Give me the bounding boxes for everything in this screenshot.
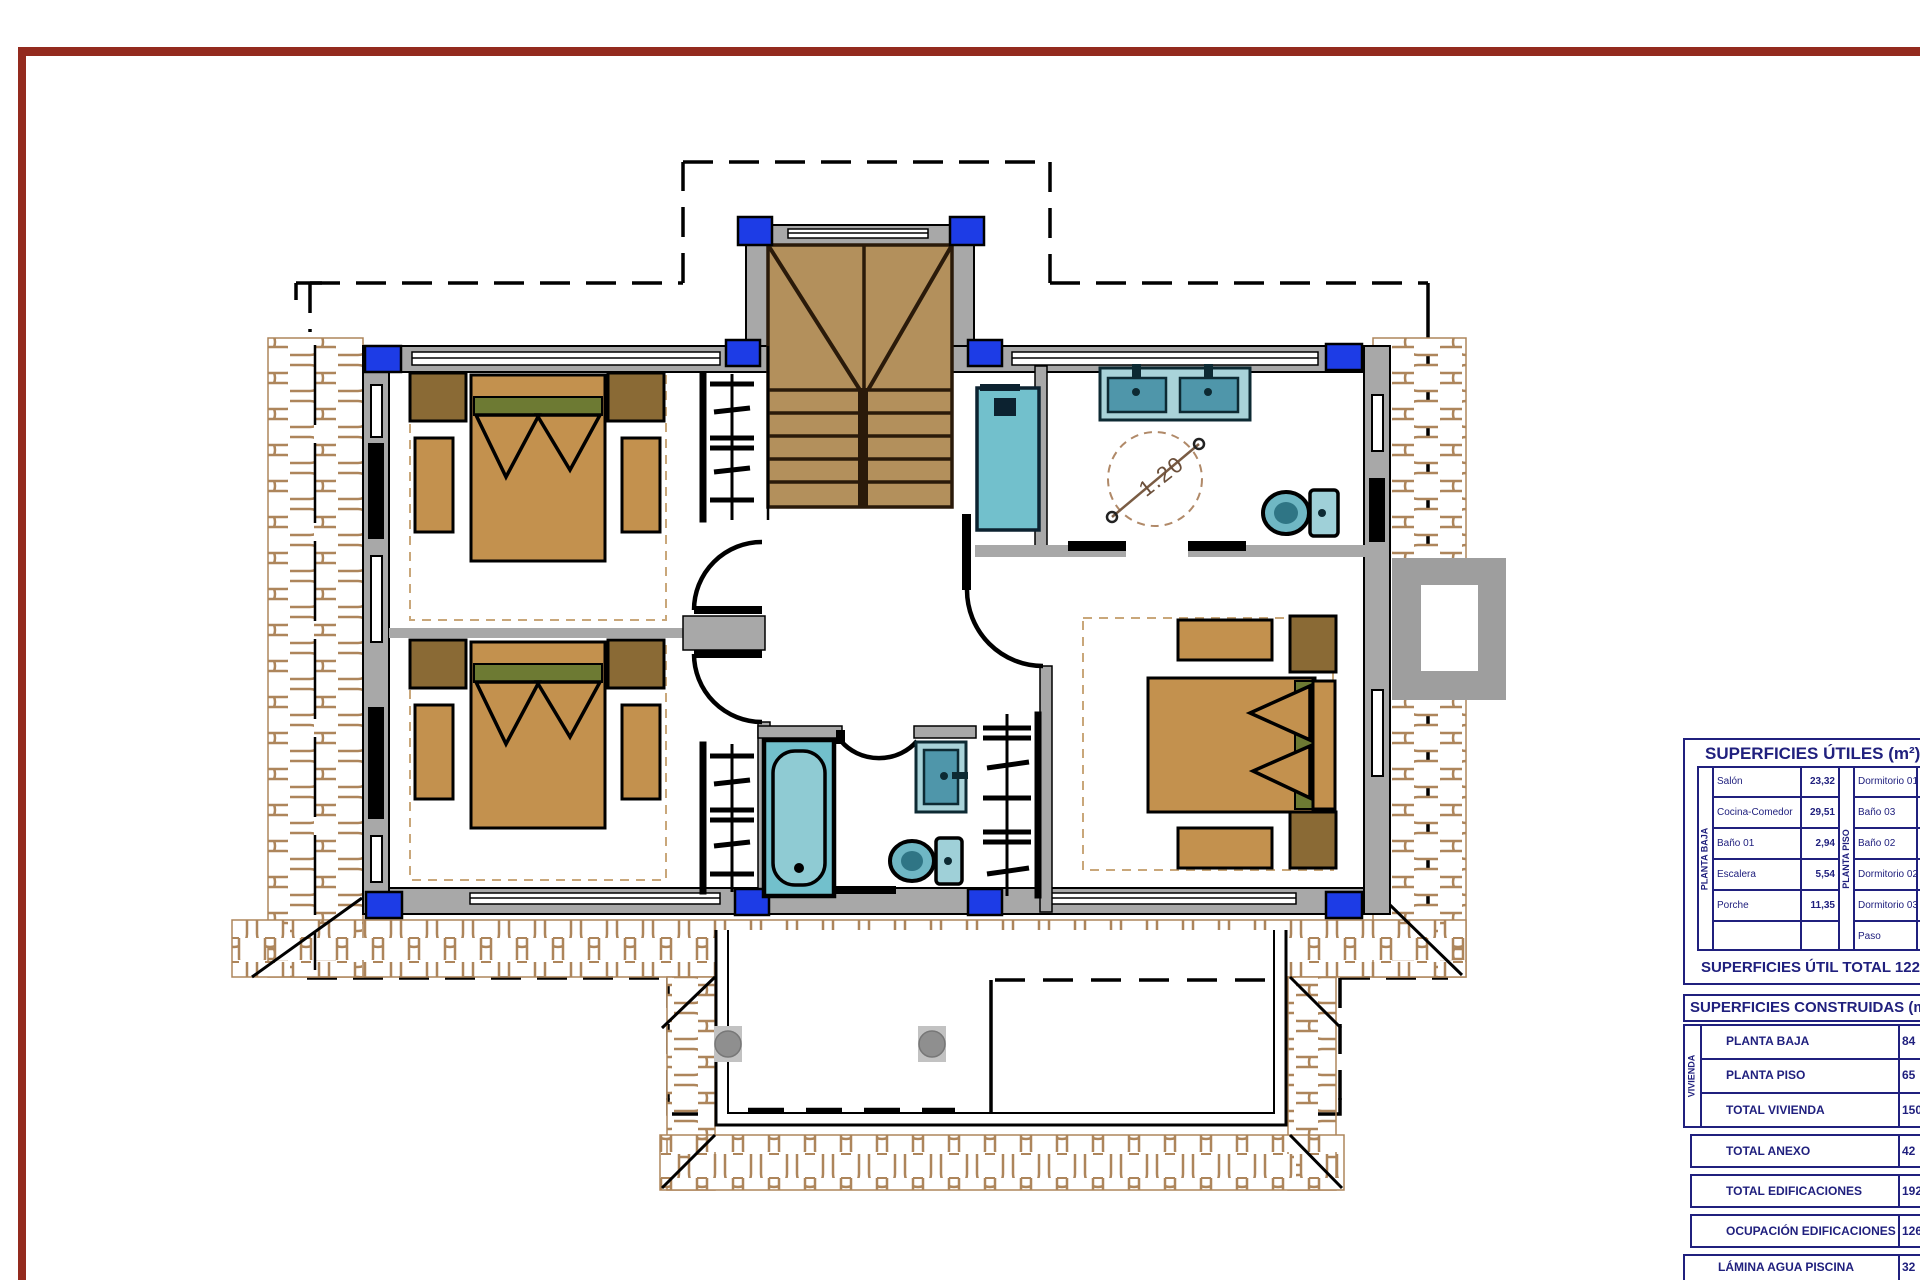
shower (977, 384, 1039, 530)
toilet (1263, 490, 1338, 536)
planta-baja-vertical-label: PLANTA BAJA (1697, 766, 1712, 951)
row-value: 126 (1898, 1214, 1920, 1248)
row-value: 65 (1898, 1058, 1920, 1092)
row-name: OCUPACIÓN EDIFICACIONES (1700, 1214, 1898, 1248)
row-name: Baño 01 (1712, 828, 1800, 858)
floor-plan-drawing: 1.20 (0, 0, 1920, 1280)
staircase (746, 225, 974, 520)
row-value: 192 (1898, 1174, 1920, 1208)
row-name: TOTAL VIVIENDA (1700, 1092, 1898, 1128)
row-name: Baño 03 (1853, 797, 1916, 827)
row-name: TOTAL EDIFICACIONES (1700, 1174, 1898, 1208)
row-name: Paso (1853, 921, 1916, 951)
row-value: 150 (1898, 1092, 1920, 1128)
row-name: Cocina-Comedor (1712, 797, 1800, 827)
row-value: 32 (1898, 1254, 1920, 1280)
row-name: Escalera (1712, 859, 1800, 889)
row-name: Salón (1712, 766, 1800, 796)
row-name: Baño 02 (1853, 828, 1916, 858)
row-name: Dormitorio 02 (1853, 859, 1916, 889)
planta-piso-vertical-label: PLANTA PISO (1838, 766, 1853, 951)
row-value: 2,94 (1800, 828, 1838, 858)
porch-column (918, 1026, 946, 1062)
sink (916, 742, 968, 812)
utiles-title: SUPERFICIES ÚTILES (m²) (1705, 744, 1920, 764)
bed (410, 373, 664, 561)
window (368, 385, 384, 882)
row-name: LÁMINA AGUA PISCINA (1692, 1254, 1898, 1280)
vivienda-vertical-label: VIVIENDA (1683, 1024, 1700, 1128)
row-value: 23,32 (1800, 766, 1838, 796)
row-value: 29,51 (1800, 797, 1838, 827)
bathtub (764, 740, 834, 896)
row-name: Dormitorio 01 (1853, 766, 1916, 796)
porch (714, 930, 1286, 1125)
row-value: 42 (1898, 1134, 1920, 1168)
row-name: Porche (1712, 890, 1800, 920)
bed (410, 640, 664, 828)
row-name: Dormitorio 03 (1853, 890, 1916, 920)
double-sink (1100, 364, 1250, 420)
row-value: 11,35 (1800, 890, 1838, 920)
row-value: 84 (1898, 1024, 1920, 1058)
bed (1148, 616, 1336, 868)
row-name: PLANTA PISO (1700, 1058, 1898, 1092)
row-name: TOTAL ANEXO (1700, 1134, 1898, 1168)
construidas-title: SUPERFICIES CONSTRUIDAS (m²) (1690, 999, 1920, 1016)
floor-plan-sheet: 1.20 SUPERFICIES ÚTILES (m²) PLANTA BAJA… (0, 0, 1920, 1280)
row-value: 5,54 (1800, 859, 1838, 889)
turning-circle: 1.20 (1107, 432, 1204, 526)
utiles-total: SUPERFICIES ÚTIL TOTAL 122,66 m² (1701, 959, 1920, 976)
row-name: PLANTA BAJA (1700, 1024, 1898, 1058)
chimney (1392, 558, 1506, 700)
porch-column (714, 1026, 742, 1062)
toilet (890, 838, 962, 884)
